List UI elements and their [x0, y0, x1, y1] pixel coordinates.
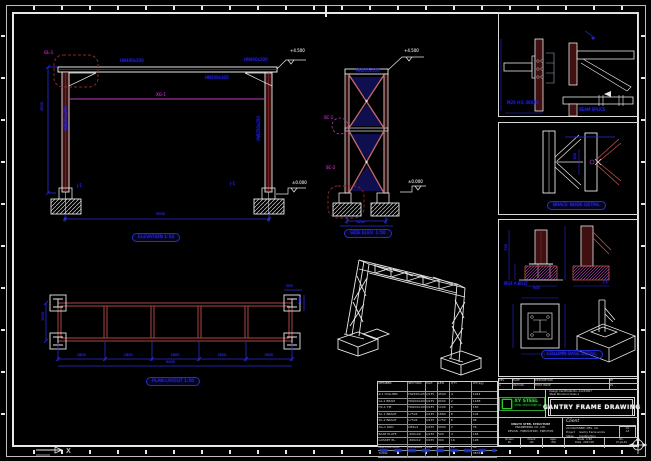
client-value: XX MACHINERY MFG. CO. — [566, 427, 598, 430]
main-title-cell: Design Certificate No. A1234567 Steel St… — [546, 390, 638, 418]
brace-upper-label: SC-1 — [324, 116, 333, 120]
table-cell: HN200x100 — [408, 405, 426, 411]
revision-col: DATE — [513, 379, 535, 383]
table-cell: 2 — [450, 425, 472, 431]
table-cell: Q235 — [426, 412, 438, 418]
isometric-view-drawing — [333, 244, 479, 374]
company-line-3: DESIGN - FABRICATION - ERECTION — [508, 430, 553, 433]
material-table: MEMBER SECTION MAT. LEN QTY WT(kg) Z-1 C… — [377, 381, 498, 447]
table-cell: 4 — [450, 392, 472, 398]
table-cell: Q235 — [426, 418, 438, 424]
table-cell: 16 — [450, 438, 472, 444]
client-label: Client — [566, 419, 579, 424]
col-header: MAT. — [426, 382, 438, 391]
table-cell: Q235 — [426, 405, 438, 411]
table-cell: -300x12 — [408, 438, 426, 444]
company-logo: XY STEEL STEEL STRUCTURE CO. — [499, 397, 545, 411]
beam-mark-label: GL-1 — [44, 51, 53, 55]
column-size-label-right: HW250x250 — [257, 116, 261, 141]
table-cell: BASE PLATE — [378, 432, 408, 438]
table-cell: 500 — [438, 432, 451, 438]
table-cell: Q235 — [426, 399, 438, 405]
table-cell: Q235 — [426, 425, 438, 431]
col-header: WT(kg) — [472, 382, 497, 391]
table-cell: 1188 — [472, 399, 497, 405]
table-cell: 3876 — [472, 451, 497, 457]
table-cell: Q235 — [426, 392, 438, 398]
bay-dim: 1800 — [245, 354, 292, 358]
plan-total-dim: 9000 — [166, 361, 175, 365]
table-row: BASE PLATE -500x20 Q235 500 4 156 — [378, 432, 497, 439]
table-row: HC-1 TIE HN200x100 Q235 1200 6 150 — [378, 405, 497, 412]
table-cell: Q235 — [426, 432, 438, 438]
sheet-size: A3 — [620, 430, 635, 433]
bay-dim: 1800 — [58, 354, 105, 358]
footing-label-right: J-1 — [230, 182, 235, 186]
table-row: XG-1 ROD D89x4 Q235 9000 2 76 — [378, 425, 497, 432]
revision-value: FIRST ISSUE — [535, 384, 610, 389]
base-width-dim: 500 — [533, 287, 540, 291]
table-row: TOTAL 3876 — [378, 451, 497, 458]
table-row: Z-1 COLUMN HW250x250 Q235 4500 4 1944 — [378, 392, 497, 399]
beam-size-label: HN400x200 — [120, 59, 144, 63]
front-elevation-drawing — [36, 42, 312, 228]
span-dim: 9000 — [156, 213, 165, 217]
table-row: SC-2 BRACE L75x6 Q235 1750 8 96 — [378, 418, 497, 425]
logo-cell: XY STEEL STEEL STRUCTURE CO. — [499, 390, 546, 418]
height-dim: 4500 — [41, 102, 45, 111]
table-row: SC-1 BRACE L75x6 Q235 1860 8 104 — [378, 412, 497, 419]
table-cell: 96 — [472, 418, 497, 424]
table-row: GL-1 BEAM HN400x200 Q235 9000 2 1188 — [378, 399, 497, 406]
ruler-ticks-left — [1, 6, 5, 455]
scale-date-cell: Scale 1:50 Date 2023.06 — [565, 438, 605, 448]
table-cell — [438, 451, 451, 457]
plan-corner-dim-h: 500 — [286, 285, 293, 289]
table-cell: HN400x200 — [408, 399, 426, 405]
signature-row: Drawn ZL Check LM Appr. WQ Scale 1:50 Da… — [499, 438, 638, 448]
table-cell: D89x4 — [408, 425, 426, 431]
col-header: SECTION — [408, 382, 426, 391]
anchor-bolt-note: M24 A.BOLT — [504, 282, 528, 286]
gusset-detail-title: BRACE NODE DETAIL — [547, 201, 606, 210]
bay-dim: 1800 — [198, 354, 245, 358]
table-cell: L75x6 — [408, 418, 426, 424]
client-cell: Client XX MACHINERY MFG. CO. Project Gan… — [563, 418, 638, 438]
bolt-note-label: M20 H.S. BOLTS — [507, 101, 539, 105]
table-cell: 9000 — [438, 425, 451, 431]
logo-emblem-icon — [502, 399, 512, 409]
table-cell: GUSSET PL. — [378, 438, 408, 444]
table-cell: 6 — [450, 405, 472, 411]
table-cell: 8 — [450, 418, 472, 424]
table-cell: 2 — [450, 399, 472, 405]
table-row: GUSSET PL. -300x12 Q235 300 16 128 — [378, 438, 497, 445]
cert-line-2: Steel Structure Class-1 — [549, 393, 579, 396]
side-base-dim: 1200 — [356, 221, 365, 225]
revision-value: A — [499, 384, 513, 389]
table-cell: 300 — [438, 438, 451, 444]
drawing-main-title: GANTRY FRAME DRAWING — [543, 404, 641, 411]
detail-panel-bases: M24 A.BOLT J-1 500 700 COLUMN BASE DETAI… — [498, 219, 639, 377]
approved-value: WQ — [543, 441, 564, 444]
table-cell: SC-1 BRACE — [378, 412, 408, 418]
tie-size-label: HN200x100 — [205, 76, 229, 80]
col-header: LEN — [438, 382, 451, 391]
gusset-dim: 350 — [574, 153, 578, 160]
table-cell: 4 — [450, 432, 472, 438]
front-elevation-title: ELEVATION 1:50 — [132, 233, 180, 242]
checked-cell: Check LM — [521, 438, 543, 448]
table-cell: Z-1 COLUMN — [378, 392, 408, 398]
footing-mark-label: J-1 — [603, 280, 608, 284]
level-top-label: +4.500 — [290, 49, 305, 53]
bottom-blue-marks — [380, 449, 496, 452]
detail-panel-connections: M20 H.S. BOLTS BEAM SPLICE — [498, 12, 639, 117]
drawn-value: ZL — [499, 441, 520, 444]
approved-cell: Appr. WQ — [543, 438, 565, 448]
side-elevation-title: SIDE ELEV. 1:50 — [344, 229, 392, 238]
table-cell: 8 — [450, 412, 472, 418]
table-cell: 156 — [472, 432, 497, 438]
ucs-x-label: X — [66, 448, 71, 456]
table-cell: 128 — [472, 438, 497, 444]
table-cell: HW250x250 — [408, 392, 426, 398]
north-arrow-icon — [629, 436, 647, 454]
table-cell: 4500 — [438, 392, 451, 398]
table-cell — [408, 451, 426, 457]
checked-value: LM — [521, 441, 542, 444]
revision-value: 2023.06 — [513, 384, 535, 389]
drawn-cell: Drawn ZL — [499, 438, 521, 448]
plan-corner-dim-v: 500 — [299, 297, 303, 304]
side-level-base-label: ±0.000 — [408, 180, 423, 184]
detail-panel-gussets: 350 BRACE NODE DETAIL — [498, 122, 639, 215]
ruler-ticks-bottom — [7, 450, 644, 454]
revision-col: REV — [499, 379, 513, 383]
footing-label-left: J-1 — [77, 184, 82, 188]
title-block: REV DATE DESCRIPTION BY A 2023.06 FIRST … — [498, 378, 639, 447]
bay-dim: 1800 — [152, 354, 199, 358]
plan-bay-dims: 18001800180018001800 — [58, 354, 292, 358]
base-height-dim: 700 — [505, 244, 509, 251]
date-value: 2023.06 — [583, 441, 594, 444]
company-cell: XINGYU STEEL STRUCTURE ENGINEERING CO., … — [499, 418, 563, 438]
bay-dim: 1800 — [105, 354, 152, 358]
plan-side-dim: 1500 — [42, 312, 46, 321]
table-cell: 1200 — [438, 405, 451, 411]
ucs-icon[interactable] — [34, 443, 78, 459]
table-cell — [450, 451, 472, 457]
beam-size-label-right: HN400x200 — [244, 58, 268, 62]
table-cell: 150 — [472, 405, 497, 411]
column-size-label-left: HW250x250 — [64, 106, 68, 131]
material-table-header: MEMBER SECTION MAT. LEN QTY WT(kg) — [378, 382, 497, 392]
cap-size-label: HN200x100 — [356, 69, 380, 73]
ruler-ticks-right — [641, 6, 645, 455]
col-header: QTY — [450, 382, 472, 391]
cad-canvas[interactable]: GL-1 HN400x200 HN400x200 XG-1 HN200x100 … — [0, 0, 651, 461]
table-cell: GL-1 BEAM — [378, 399, 408, 405]
brace-lower-label: SC-2 — [326, 166, 335, 170]
table-cell: HC-1 TIE — [378, 405, 408, 411]
table-cell — [426, 451, 438, 457]
revision-value: ZL — [610, 384, 638, 389]
table-cell: Q235 — [426, 438, 438, 444]
table-cell: XG-1 ROD — [378, 425, 408, 431]
table-cell: SC-2 BRACE — [378, 418, 408, 424]
table-cell: 1750 — [438, 418, 451, 424]
main-title-box: GANTRY FRAME DRAWING — [548, 397, 635, 416]
base-detail-title: COLUMN BASE DETAIL — [541, 350, 603, 359]
logo-title-row: XY STEEL STEEL STRUCTURE CO. Design Cert… — [499, 390, 638, 418]
revision-col: DESCRIPTION — [535, 379, 610, 383]
splice-note-label: BEAM SPLICE — [579, 108, 605, 112]
plan-view-title: PLAN LAYOUT 1:50 — [146, 377, 200, 386]
side-level-top-label: +4.500 — [404, 49, 419, 53]
level-base-label: ±0.000 — [292, 181, 307, 185]
table-cell: 1860 — [438, 412, 451, 418]
logo-subtitle: STEEL STRUCTURE CO. — [514, 405, 542, 408]
table-cell: 76 — [472, 425, 497, 431]
date-label: Date — [575, 441, 581, 444]
tie-mark-label: XG-1 — [156, 93, 166, 97]
table-cell: L75x6 — [408, 412, 426, 418]
col-header: MEMBER — [378, 382, 408, 391]
table-cell: 104 — [472, 412, 497, 418]
company-client-row: XINGYU STEEL STRUCTURE ENGINEERING CO., … — [499, 418, 638, 438]
table-cell: TOTAL — [378, 451, 408, 457]
table-cell: 1944 — [472, 392, 497, 398]
table-cell: 9000 — [438, 399, 451, 405]
table-cell: -500x20 — [408, 432, 426, 438]
revision-col: BY — [610, 379, 638, 383]
